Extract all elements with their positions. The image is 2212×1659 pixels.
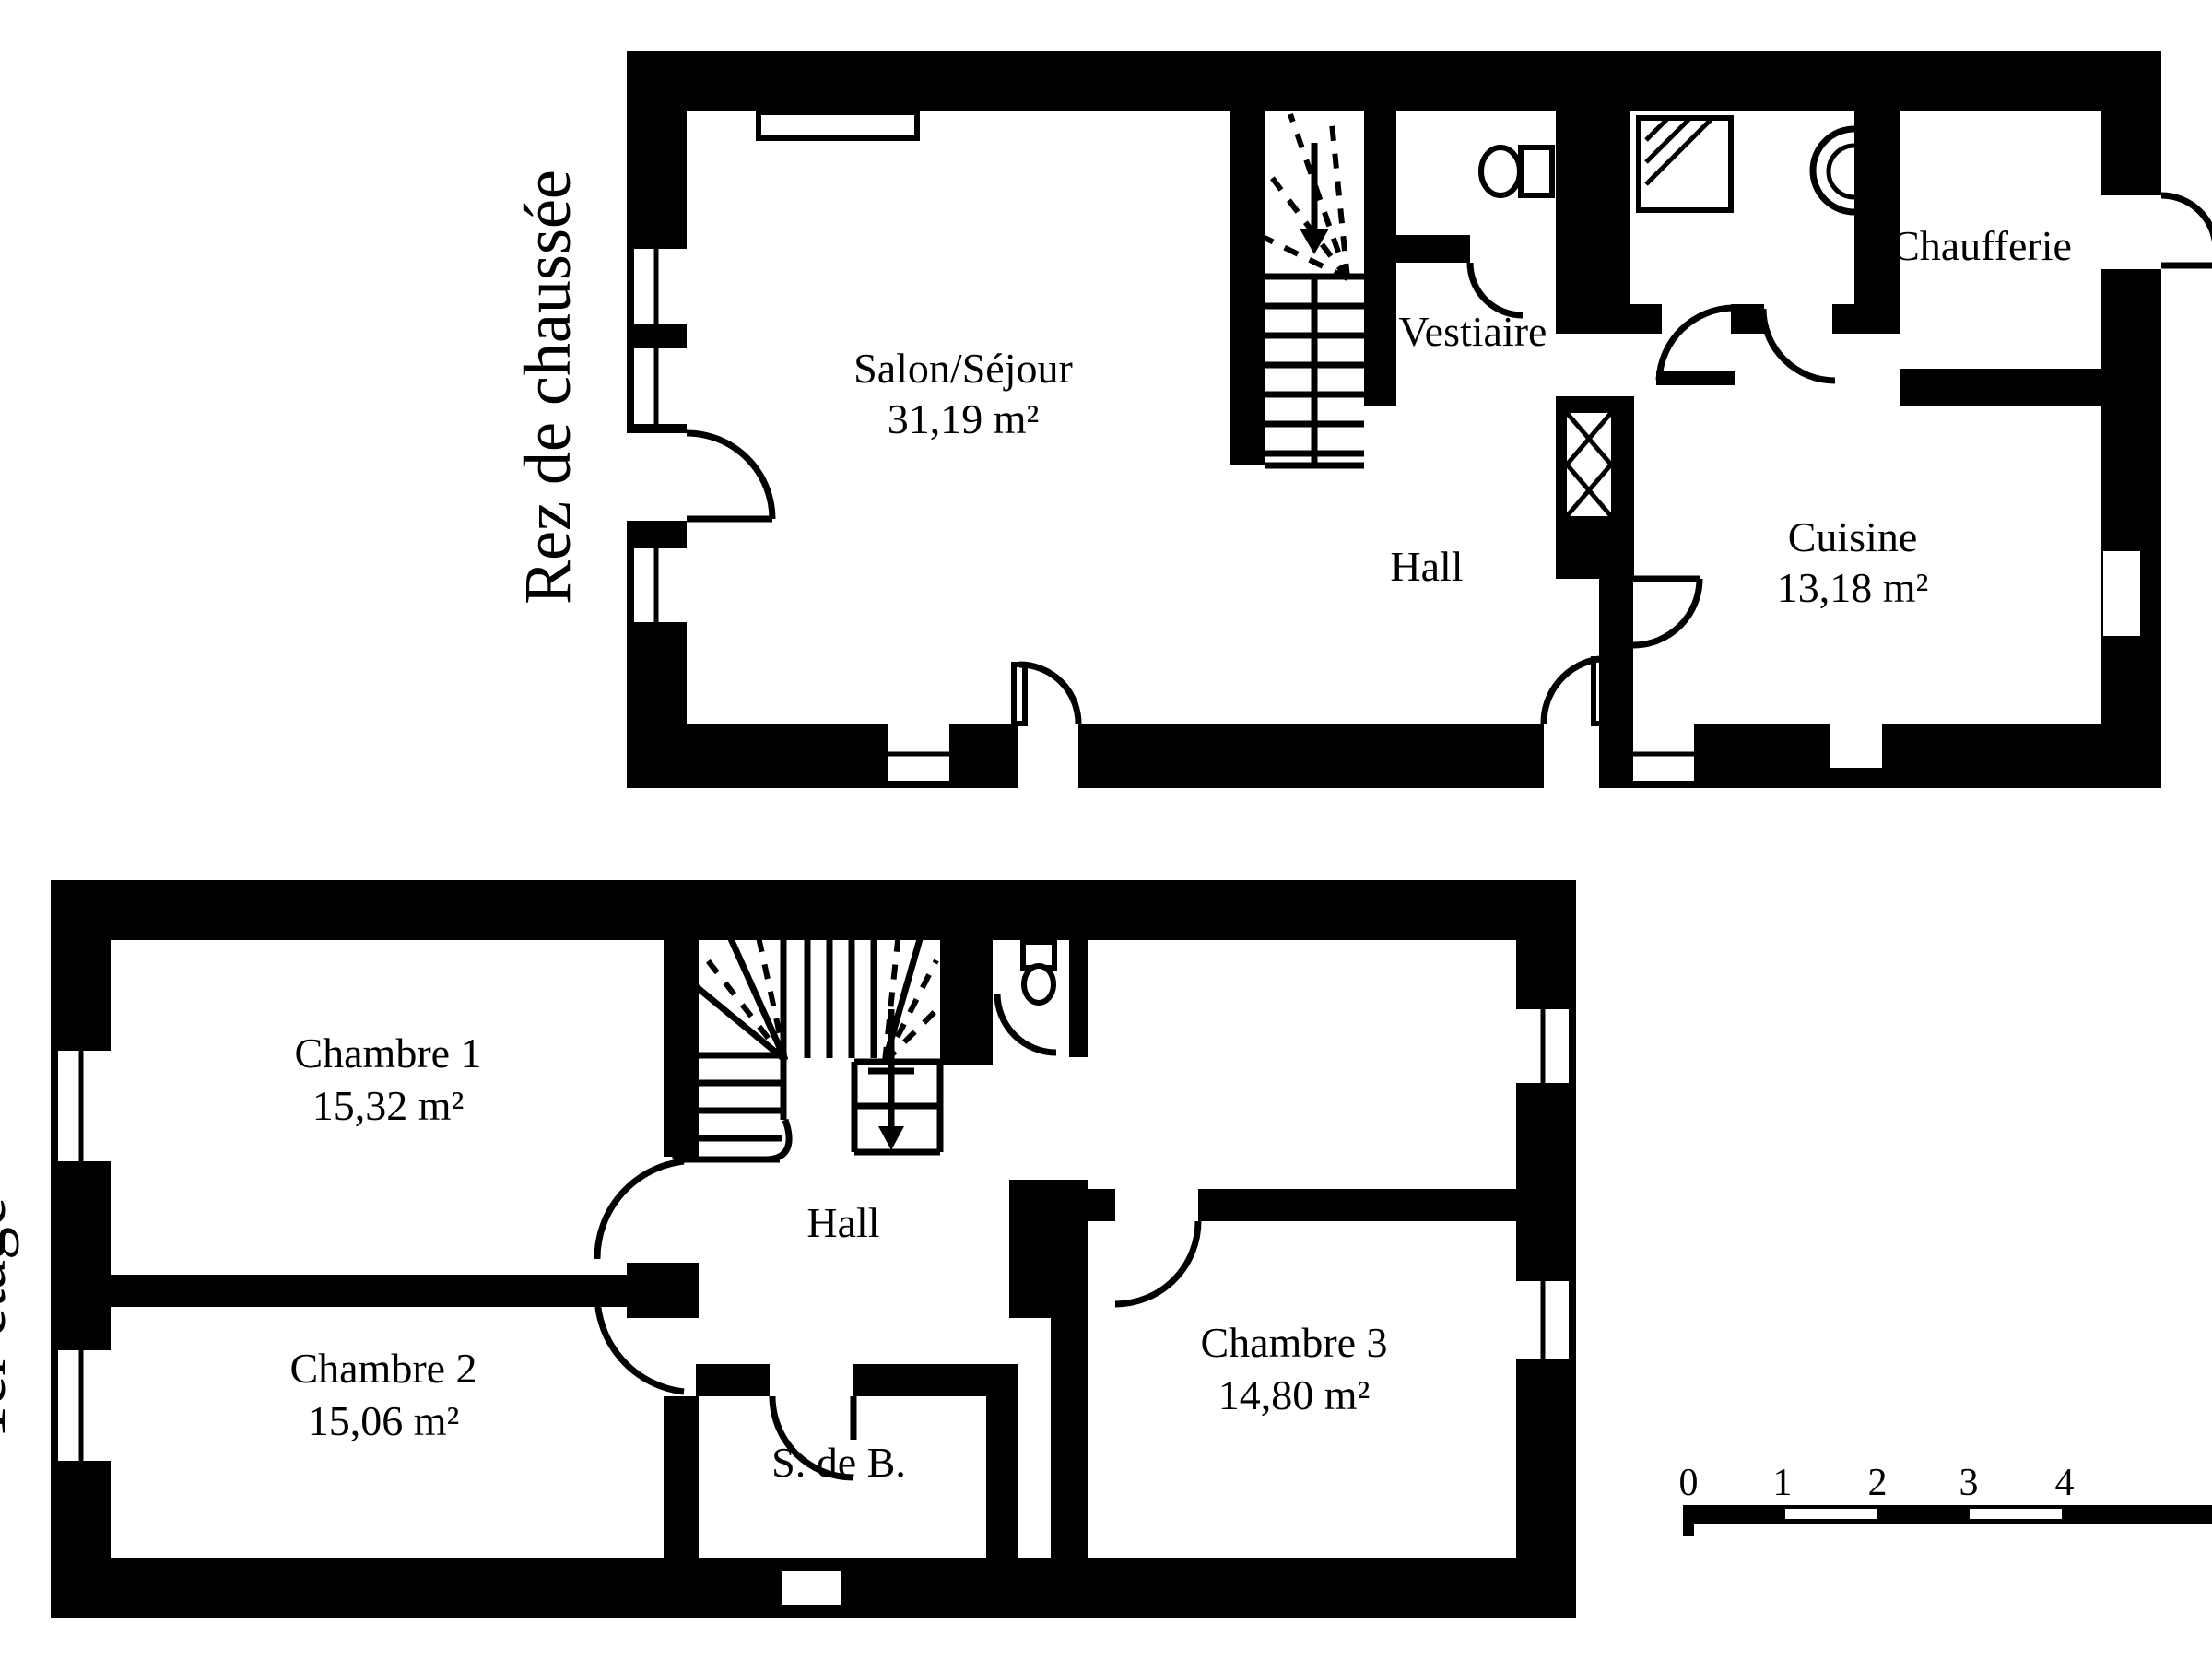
wall-wc-right (1069, 933, 1088, 1057)
wall-ch3-top-b (1198, 1189, 1516, 1221)
scale-bar: 0 1 2 3 4 (1679, 1462, 2212, 1536)
wall-ch2-sdb (664, 1396, 699, 1558)
scale-bar-rule (1685, 1505, 2212, 1524)
scale-tick-2: 2 (1868, 1462, 1888, 1504)
ground-floor-title: Rez de chaussée (511, 170, 584, 605)
window-right-cuisine (2103, 551, 2140, 636)
scale-tick-4: 4 (2055, 1462, 2075, 1504)
chambre3-name-label: Chambre 3 (1200, 1319, 1387, 1366)
terrace-door-salon (1014, 665, 1078, 788)
first-hall-label: Hall (806, 1199, 879, 1246)
cuisine-area-label: 13,18 m² (1777, 564, 1929, 611)
salon-name-label: Salon/Séjour (853, 345, 1073, 392)
window-right-1 (1516, 1009, 1569, 1083)
window-left-ch2 (58, 1350, 111, 1461)
ground-floor-plan: Rez de chaussée Salon/Séjour 31,19 m² Ve… (511, 51, 2212, 788)
chaufferie-label: Chaufferie (1891, 222, 2072, 269)
wall-ch1-ch2 (111, 1275, 664, 1307)
window-bottom-3 (1830, 724, 1882, 768)
bottom-wall-vent (779, 1569, 843, 1607)
chambre3-door-arc (1115, 1221, 1198, 1304)
sdb-label: S. de B. (771, 1439, 906, 1486)
window-bottom-1 (888, 724, 949, 781)
wall-sdb-right (986, 1364, 1018, 1558)
salon-window-sill (759, 112, 917, 138)
cuisine-door (1633, 579, 1700, 645)
staircase-ground (1265, 114, 1364, 465)
scale-bar-endcap (1683, 1505, 1694, 1536)
scale-tick-1: 1 (1773, 1462, 1793, 1504)
cuisine-name-label: Cuisine (1788, 513, 1918, 560)
vestiaire-label: Vestiaire (1399, 308, 1547, 355)
toilet-icon-wc (1023, 942, 1054, 1003)
toilet-icon-vestiaire (1481, 147, 1552, 195)
wall-hall-cuisine (1599, 579, 1633, 728)
wall-right-of-vestiaire (1556, 51, 1630, 318)
scale-tick-3: 3 (1959, 1462, 1979, 1504)
stair-direction-arrow-up (878, 1126, 904, 1150)
scale-tick-0: 0 (1679, 1462, 1699, 1504)
wall-between-doors (1731, 304, 1764, 334)
shower-icon (1639, 118, 1731, 210)
wall-stair-wc (940, 933, 993, 1065)
chambre3-area-label: 14,80 m² (1218, 1371, 1371, 1418)
wall-sdb-top-left (696, 1364, 770, 1396)
window-left-ch1 (58, 1051, 111, 1161)
wall-stairs-vestiaire (1364, 111, 1396, 406)
wall-shower-bottom-right (1832, 304, 1900, 334)
wall-shower-bottom-left (1556, 304, 1662, 334)
back-door-hall (1544, 659, 1605, 788)
chambre1-door-arc (597, 1161, 684, 1259)
chambre1-name-label: Chambre 1 (294, 1030, 481, 1077)
chaufferie-inner-door (1763, 309, 1835, 381)
window-right-2 (1516, 1281, 1569, 1359)
first-floor-title: 1er étage (0, 1197, 19, 1439)
floor-plan-page: Rez de chaussée Salon/Séjour 31,19 m² Ve… (0, 0, 2212, 1659)
chaufferie-exterior-door (2101, 195, 2212, 269)
ground-hall-label: Hall (1390, 543, 1463, 590)
window-left-2 (634, 548, 687, 622)
window-bottom-2 (1633, 724, 1694, 781)
wc-room (997, 942, 1056, 1053)
wall-ch3-left (1051, 1189, 1088, 1558)
sink-icon (1813, 129, 1854, 212)
entry-door (627, 433, 772, 521)
wall-salon-stairs (1230, 111, 1265, 465)
staircase-first (676, 933, 940, 1159)
chambre1-area-label: 15,32 m² (312, 1082, 465, 1129)
wall-chaufferie-cuisine (1900, 369, 2101, 406)
first-floor-walls (51, 880, 1576, 1618)
chimney-flue-icon (1556, 396, 1634, 579)
wall-ch1-hall (664, 940, 699, 1157)
window-left-1 (634, 249, 687, 424)
chambre2-area-label: 15,06 m² (308, 1397, 460, 1444)
wall-vestiaire-stub (1396, 235, 1470, 263)
wall-ch3-top-a (1088, 1189, 1115, 1221)
first-floor-plan: 1er étage Chambre 1 15,32 m² Chambre 2 1… (0, 880, 1576, 1618)
chambre2-name-label: Chambre 2 (289, 1345, 477, 1392)
shower-room-door (1656, 308, 1735, 385)
floor-plan-drawing: Rez de chaussée Salon/Séjour 31,19 m² Ve… (0, 0, 2212, 1659)
salon-area-label: 31,19 m² (888, 395, 1040, 442)
